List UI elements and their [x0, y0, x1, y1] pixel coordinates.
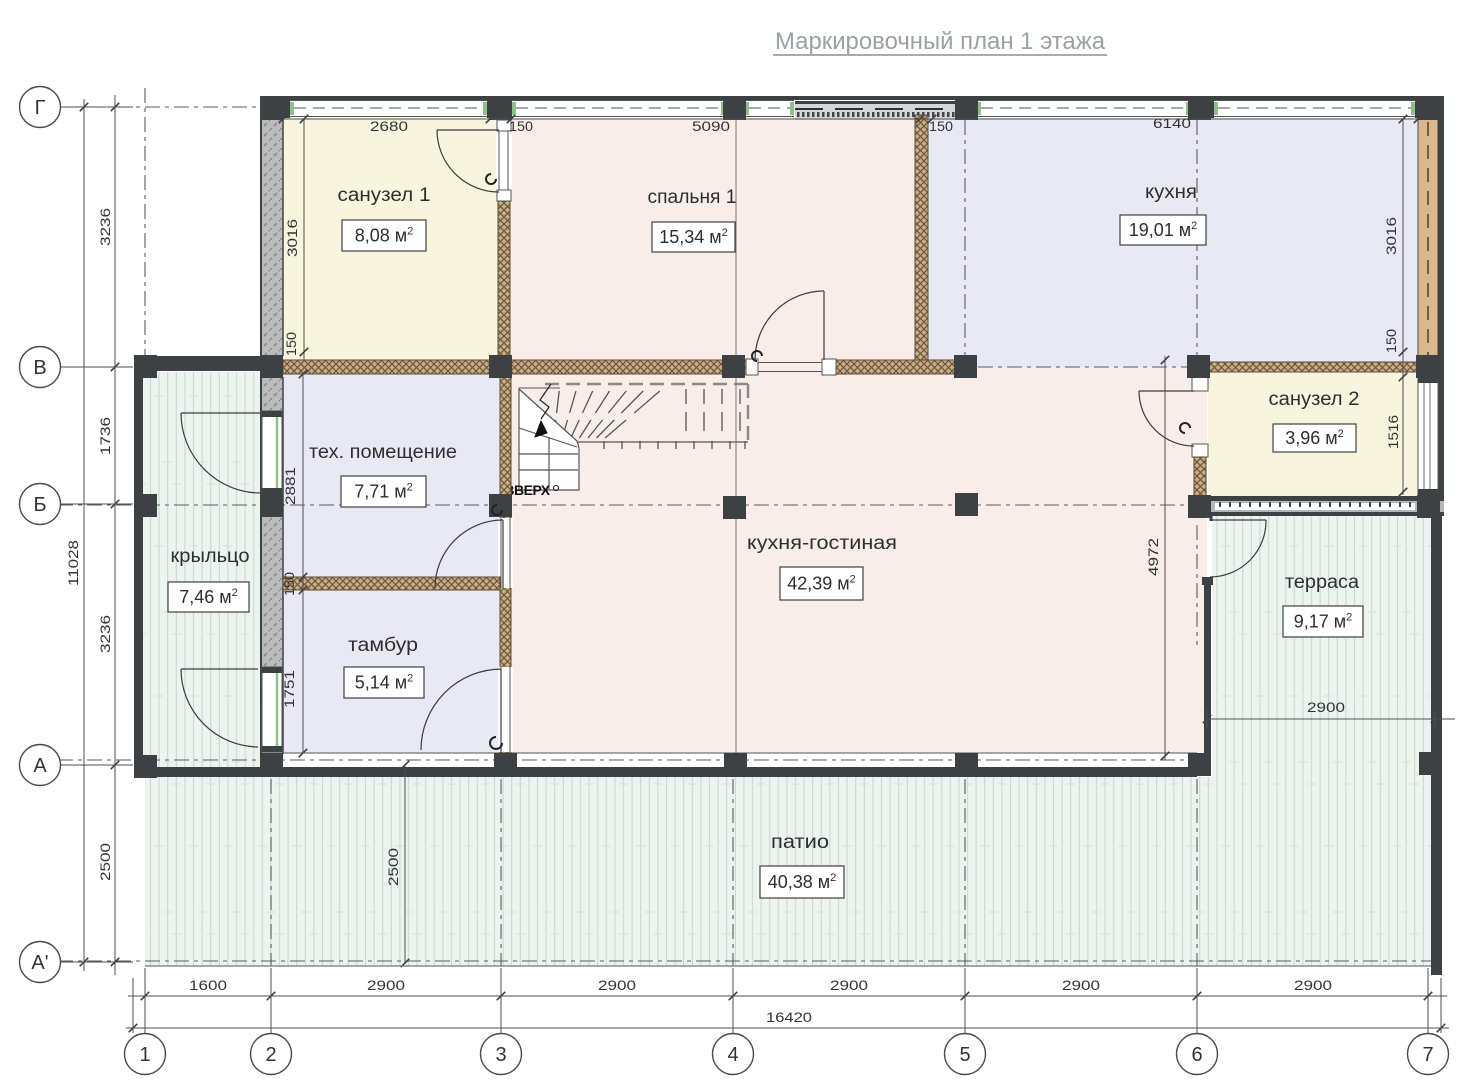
svg-text:7,46 м2: 7,46 м2 [179, 587, 238, 607]
svg-text:6140: 6140 [1153, 115, 1191, 131]
svg-text:1600: 1600 [189, 977, 227, 993]
svg-text:4: 4 [727, 1044, 738, 1066]
svg-text:150: 150 [283, 332, 299, 356]
svg-text:2900: 2900 [367, 977, 405, 993]
svg-text:Маркировочный план 1 этажа: Маркировочный план 1 этажа [775, 28, 1106, 55]
svg-text:2900: 2900 [1062, 977, 1100, 993]
svg-text:3236: 3236 [97, 615, 113, 653]
svg-text:5: 5 [959, 1044, 970, 1066]
svg-text:2: 2 [265, 1044, 276, 1066]
svg-text:санузел 1: санузел 1 [338, 185, 431, 206]
svg-text:1516: 1516 [1385, 415, 1401, 449]
svg-text:спальня 1: спальня 1 [648, 187, 737, 208]
svg-text:2900: 2900 [1294, 977, 1332, 993]
svg-text:150: 150 [281, 572, 297, 596]
svg-text:16420: 16420 [766, 1009, 812, 1025]
svg-text:7,71 м2: 7,71 м2 [354, 482, 413, 502]
svg-text:3: 3 [495, 1044, 506, 1066]
svg-text:Г: Г [35, 97, 46, 119]
svg-text:Б: Б [33, 494, 46, 516]
svg-text:11028: 11028 [65, 540, 81, 586]
svg-text:150: 150 [509, 118, 533, 134]
svg-text:6: 6 [1191, 1044, 1202, 1066]
svg-text:1751: 1751 [281, 670, 297, 708]
svg-text:2500: 2500 [97, 843, 113, 881]
svg-text:4972: 4972 [1145, 538, 1161, 576]
svg-text:3016: 3016 [284, 219, 300, 257]
svg-text:42,39 м2: 42,39 м2 [787, 574, 856, 594]
svg-text:150: 150 [929, 118, 953, 134]
svg-text:кухня-гостиная: кухня-гостиная [747, 533, 897, 554]
svg-text:тамбур: тамбур [348, 635, 418, 656]
svg-text:1: 1 [139, 1044, 150, 1066]
svg-text:А: А [33, 755, 47, 777]
svg-text:9,17 м2: 9,17 м2 [1294, 612, 1353, 632]
svg-text:19,01 м2: 19,01 м2 [1129, 220, 1198, 240]
svg-text:40,38 м2: 40,38 м2 [768, 872, 837, 892]
svg-text:1736: 1736 [97, 417, 113, 455]
svg-text:7: 7 [1422, 1044, 1433, 1066]
svg-text:санузел 2: санузел 2 [1269, 389, 1360, 410]
svg-text:2881: 2881 [282, 467, 298, 505]
svg-text:А': А' [31, 952, 48, 974]
svg-text:кухня: кухня [1145, 182, 1197, 203]
svg-text:2900: 2900 [1307, 699, 1345, 715]
svg-text:3016: 3016 [1383, 217, 1399, 255]
svg-text:тех. помещение: тех. помещение [309, 442, 457, 463]
svg-text:3,96 м2: 3,96 м2 [1285, 428, 1344, 448]
svg-text:150: 150 [1383, 329, 1399, 353]
svg-text:крыльцо: крыльцо [171, 546, 250, 567]
svg-text:В: В [33, 357, 46, 379]
svg-text:2500: 2500 [385, 848, 401, 886]
svg-text:5,14 м2: 5,14 м2 [355, 673, 414, 693]
svg-text:2900: 2900 [598, 977, 636, 993]
svg-text:2900: 2900 [830, 977, 868, 993]
svg-text:патио: патио [771, 832, 829, 853]
svg-text:3236: 3236 [97, 208, 113, 246]
svg-text:2680: 2680 [370, 118, 408, 134]
svg-text:15,34 м2: 15,34 м2 [659, 227, 728, 247]
svg-text:терраса: терраса [1285, 572, 1359, 593]
svg-text:8,08 м2: 8,08 м2 [355, 226, 414, 246]
svg-text:5090: 5090 [692, 118, 730, 134]
